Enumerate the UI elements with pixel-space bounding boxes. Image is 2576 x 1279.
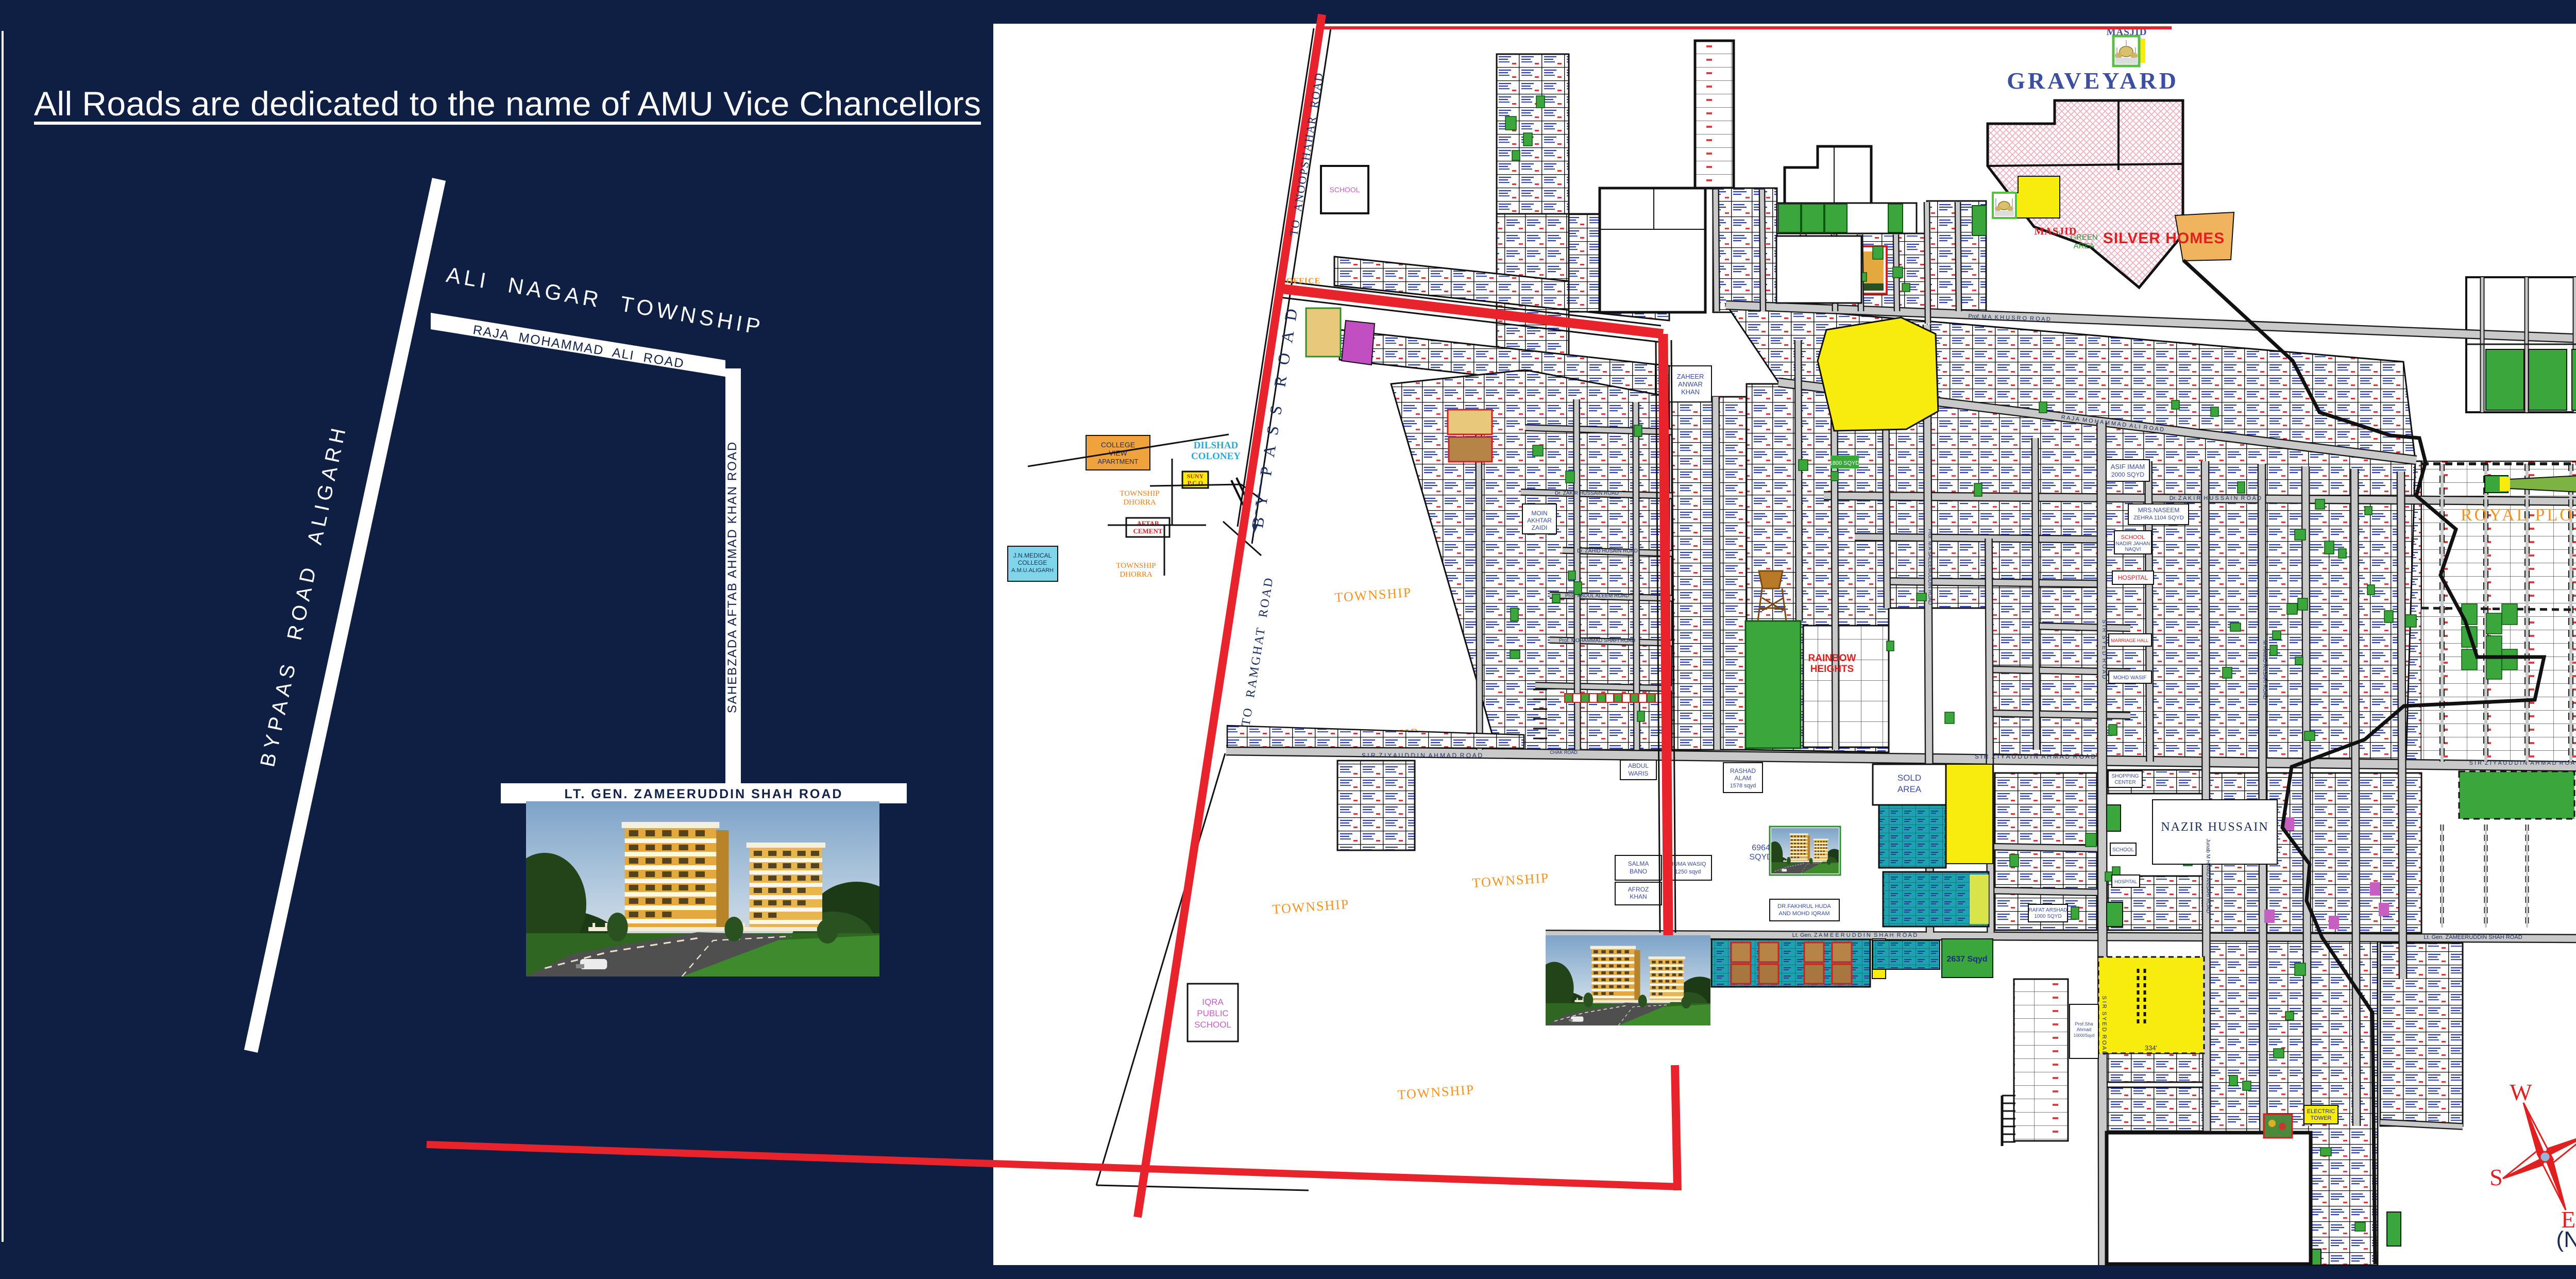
svg-text:1000 SQYD: 1000 SQYD (2034, 914, 2061, 919)
svg-text:DHORRA: DHORRA (1123, 498, 1156, 507)
svg-text:TOWNSHIP: TOWNSHIP (1120, 490, 1159, 498)
svg-text:1250 sqyd: 1250 sqyd (1675, 869, 1701, 875)
svg-text:KHAN: KHAN (1681, 388, 1700, 396)
svg-text:1578 sqyd: 1578 sqyd (1730, 783, 1756, 789)
svg-text:J.N.MEDICAL: J.N.MEDICAL (1013, 552, 1052, 559)
svg-text:AKHTAR: AKHTAR (1527, 517, 1552, 524)
svg-text:MOHD WASIF: MOHD WASIF (2113, 675, 2147, 681)
svg-text:Prof. MOHAMMAD SHAFI ROAD: Prof. MOHAMMAD SHAFI ROAD (1559, 638, 1635, 644)
svg-text:Ahmad: Ahmad (2077, 1027, 2092, 1032)
svg-text:NAQVI: NAQVI (2125, 547, 2141, 552)
svg-text:HOSPITAL: HOSPITAL (2118, 574, 2148, 581)
svg-text:Prof. ABDUL ALEEM ROAD: Prof. ABDUL ALEEM ROAD (1565, 593, 1629, 599)
svg-text:SCHOOL: SCHOOL (2121, 534, 2145, 541)
svg-text:NADIR JAHAN: NADIR JAHAN (2116, 541, 2150, 547)
svg-text:Dr. ZAKIR HUSSAIN ROAD: Dr. ZAKIR HUSSAIN ROAD (1555, 491, 1619, 496)
svg-text:SOLD: SOLD (1897, 773, 1921, 783)
svg-text:6964: 6964 (1752, 844, 1770, 852)
svg-text:2000 SQYD: 2000 SQYD (2111, 471, 2144, 478)
svg-text:AFROZ: AFROZ (1628, 886, 1649, 893)
svg-text:ZEHRA 1104 SQYD: ZEHRA 1104 SQYD (2133, 515, 2184, 521)
svg-text:DILSHAD: DILSHAD (1194, 440, 1239, 451)
svg-text:RASHAD: RASHAD (1730, 767, 1756, 775)
svg-text:APARTMENT: APARTMENT (1098, 458, 1139, 465)
svg-text:AFTAB: AFTAB (1137, 519, 1159, 527)
svg-text:SCHOOL: SCHOOL (1194, 1020, 1231, 1030)
svg-text:ANWAR: ANWAR (1678, 380, 1703, 388)
svg-text:COLLEGE: COLLEGE (1101, 441, 1135, 449)
svg-text:Prof. M A SALEEMUDDIN ROAD: Prof. M A SALEEMUDDIN ROAD (1927, 529, 1933, 604)
svg-text:M HAMID ANSARI ROAD: M HAMID ANSARI ROAD (2262, 641, 2267, 699)
svg-text:S I R Z I Y A U D D I N A H: S I R Z I Y A U D D I N A H M A D R O A … (2469, 760, 2576, 766)
svg-text:S I R S Y E D R O A D: S I R S Y E D R O A D (2101, 996, 2107, 1055)
svg-text:SCHOOL: SCHOOL (2112, 847, 2134, 853)
svg-text:S I R Z I Y A U D D I N A H: S I R Z I Y A U D D I N A H M A D R O A … (1975, 753, 2096, 760)
svg-text:KHAN: KHAN (1630, 893, 1647, 900)
svg-text:S: S (2489, 1164, 2503, 1190)
svg-text:SHOPPING: SHOPPING (2112, 773, 2139, 779)
svg-text:BANO: BANO (1630, 868, 1647, 875)
svg-text:SCHOOL: SCHOOL (1329, 186, 1360, 194)
svg-text:334': 334' (2145, 1044, 2157, 1052)
svg-text:COLONEY: COLONEY (1191, 451, 1241, 462)
svg-text:LT. GEN. ZAMEERUDDIN SHAH ROAD: LT. GEN. ZAMEERUDDIN SHAH ROAD (565, 787, 843, 801)
svg-text:RAFAT ARSHAD: RAFAT ARSHAD (2028, 907, 2067, 913)
svg-text:All Roads are dedicated to the: All Roads are dedicated to the name of A… (34, 85, 981, 123)
svg-text:Dr. Z A K I R H U S S A I N: Dr. Z A K I R H U S S A I N R O A D (2170, 495, 2262, 501)
svg-text:10000Sqyd: 10000Sqyd (2074, 1033, 2094, 1038)
svg-text:Lt. Gen. ZAMEERUDDIN SHAH ROAD: Lt. Gen. ZAMEERUDDIN SHAH ROAD (2424, 934, 2522, 940)
svg-text:CHAK ROAD: CHAK ROAD (1550, 750, 1578, 755)
svg-text:Prof.Sha: Prof.Sha (2075, 1021, 2093, 1026)
svg-text:ZAHEER: ZAHEER (1677, 373, 1704, 380)
svg-text:GREEN: GREEN (2070, 233, 2097, 242)
svg-text:Lt. Gen. Z A M E E R U D D I N: Lt. Gen. Z A M E E R U D D I N S H A H R… (1792, 932, 1918, 938)
svg-text:ALAM: ALAM (1735, 775, 1752, 782)
svg-text:W: W (2510, 1079, 2532, 1105)
svg-text:DHORRA: DHORRA (1120, 570, 1153, 579)
svg-text:NAZIR HUSSAIN: NAZIR HUSSAIN (2161, 820, 2268, 834)
svg-text:RAINBOW: RAINBOW (1808, 653, 1856, 664)
svg-text:SUNY: SUNY (1187, 473, 1204, 480)
svg-text:SALMA: SALMA (1628, 860, 1649, 867)
svg-text:A.M.U.ALIGARH: A.M.U.ALIGARH (1011, 567, 1054, 574)
svg-text:SILVER HOMES: SILVER HOMES (2103, 230, 2225, 247)
svg-text:PUBLIC: PUBLIC (1197, 1008, 1228, 1018)
svg-text:IQRA: IQRA (1202, 997, 1224, 1007)
svg-text:Junab M HAMID ANSARI ROAD: Junab M HAMID ANSARI ROAD (2205, 839, 2211, 913)
svg-text:GRAVEYARD: GRAVEYARD (2007, 68, 2179, 94)
svg-text:AND MOHD IQRAM: AND MOHD IQRAM (1779, 911, 1830, 917)
svg-text:SAHEBZADA AFTAB AHMAD KHAN ROA: SAHEBZADA AFTAB AHMAD KHAN ROAD (725, 441, 739, 713)
svg-text:MOIN: MOIN (1531, 510, 1547, 517)
svg-text:(N.T.S): (N.T.S) (2556, 1227, 2576, 1252)
svg-text:ABDUL: ABDUL (1628, 762, 1649, 769)
svg-text:CEMENT: CEMENT (1133, 527, 1162, 535)
svg-text:WARIS: WARIS (1629, 770, 1649, 777)
svg-text:ELECTRIC: ELECTRIC (2307, 1108, 2335, 1115)
svg-text:HEIGHTS: HEIGHTS (1810, 664, 1854, 675)
svg-text:HOSPITAL: HOSPITAL (2114, 879, 2137, 884)
svg-text:MARRIAGE HALL: MARRIAGE HALL (2111, 638, 2148, 643)
svg-text:OFFICE: OFFICE (1286, 277, 1320, 285)
svg-text:1800 SQYD: 1800 SQYD (1829, 460, 1860, 466)
svg-text:ROYAL PLOTING: ROYAL PLOTING (2461, 506, 2576, 525)
svg-text:COLLEGE: COLLEGE (1018, 559, 1047, 566)
svg-text:AREA: AREA (1897, 784, 1922, 794)
svg-text:DR.FAKHRUL HUDA: DR.FAKHRUL HUDA (1777, 903, 1831, 910)
svg-text:2637 Sqyd: 2637 Sqyd (1946, 955, 1987, 964)
svg-text:S I R S Y E D R O A D: S I R S Y E D R O A D (2101, 619, 2107, 679)
svg-text:TOWER: TOWER (2311, 1115, 2332, 1121)
svg-text:S I R Z I Y A U D D I N A H: S I R Z I Y A U D D I N A H M A D R O A … (1362, 752, 1483, 759)
svg-text:ZAIDI: ZAIDI (1532, 524, 1548, 531)
svg-text:TOWNSHIP: TOWNSHIP (1116, 562, 1156, 570)
svg-text:MRS.NASEEM: MRS.NASEEM (2138, 507, 2180, 514)
svg-text:ASIF IMAM: ASIF IMAM (2111, 463, 2145, 470)
svg-text:AREA: AREA (2074, 242, 2095, 250)
svg-text:Dr. ZAHID HUSAIN ROAD: Dr. ZAHID HUSAIN ROAD (1577, 548, 1638, 554)
svg-text:CENTER: CENTER (2114, 780, 2136, 785)
